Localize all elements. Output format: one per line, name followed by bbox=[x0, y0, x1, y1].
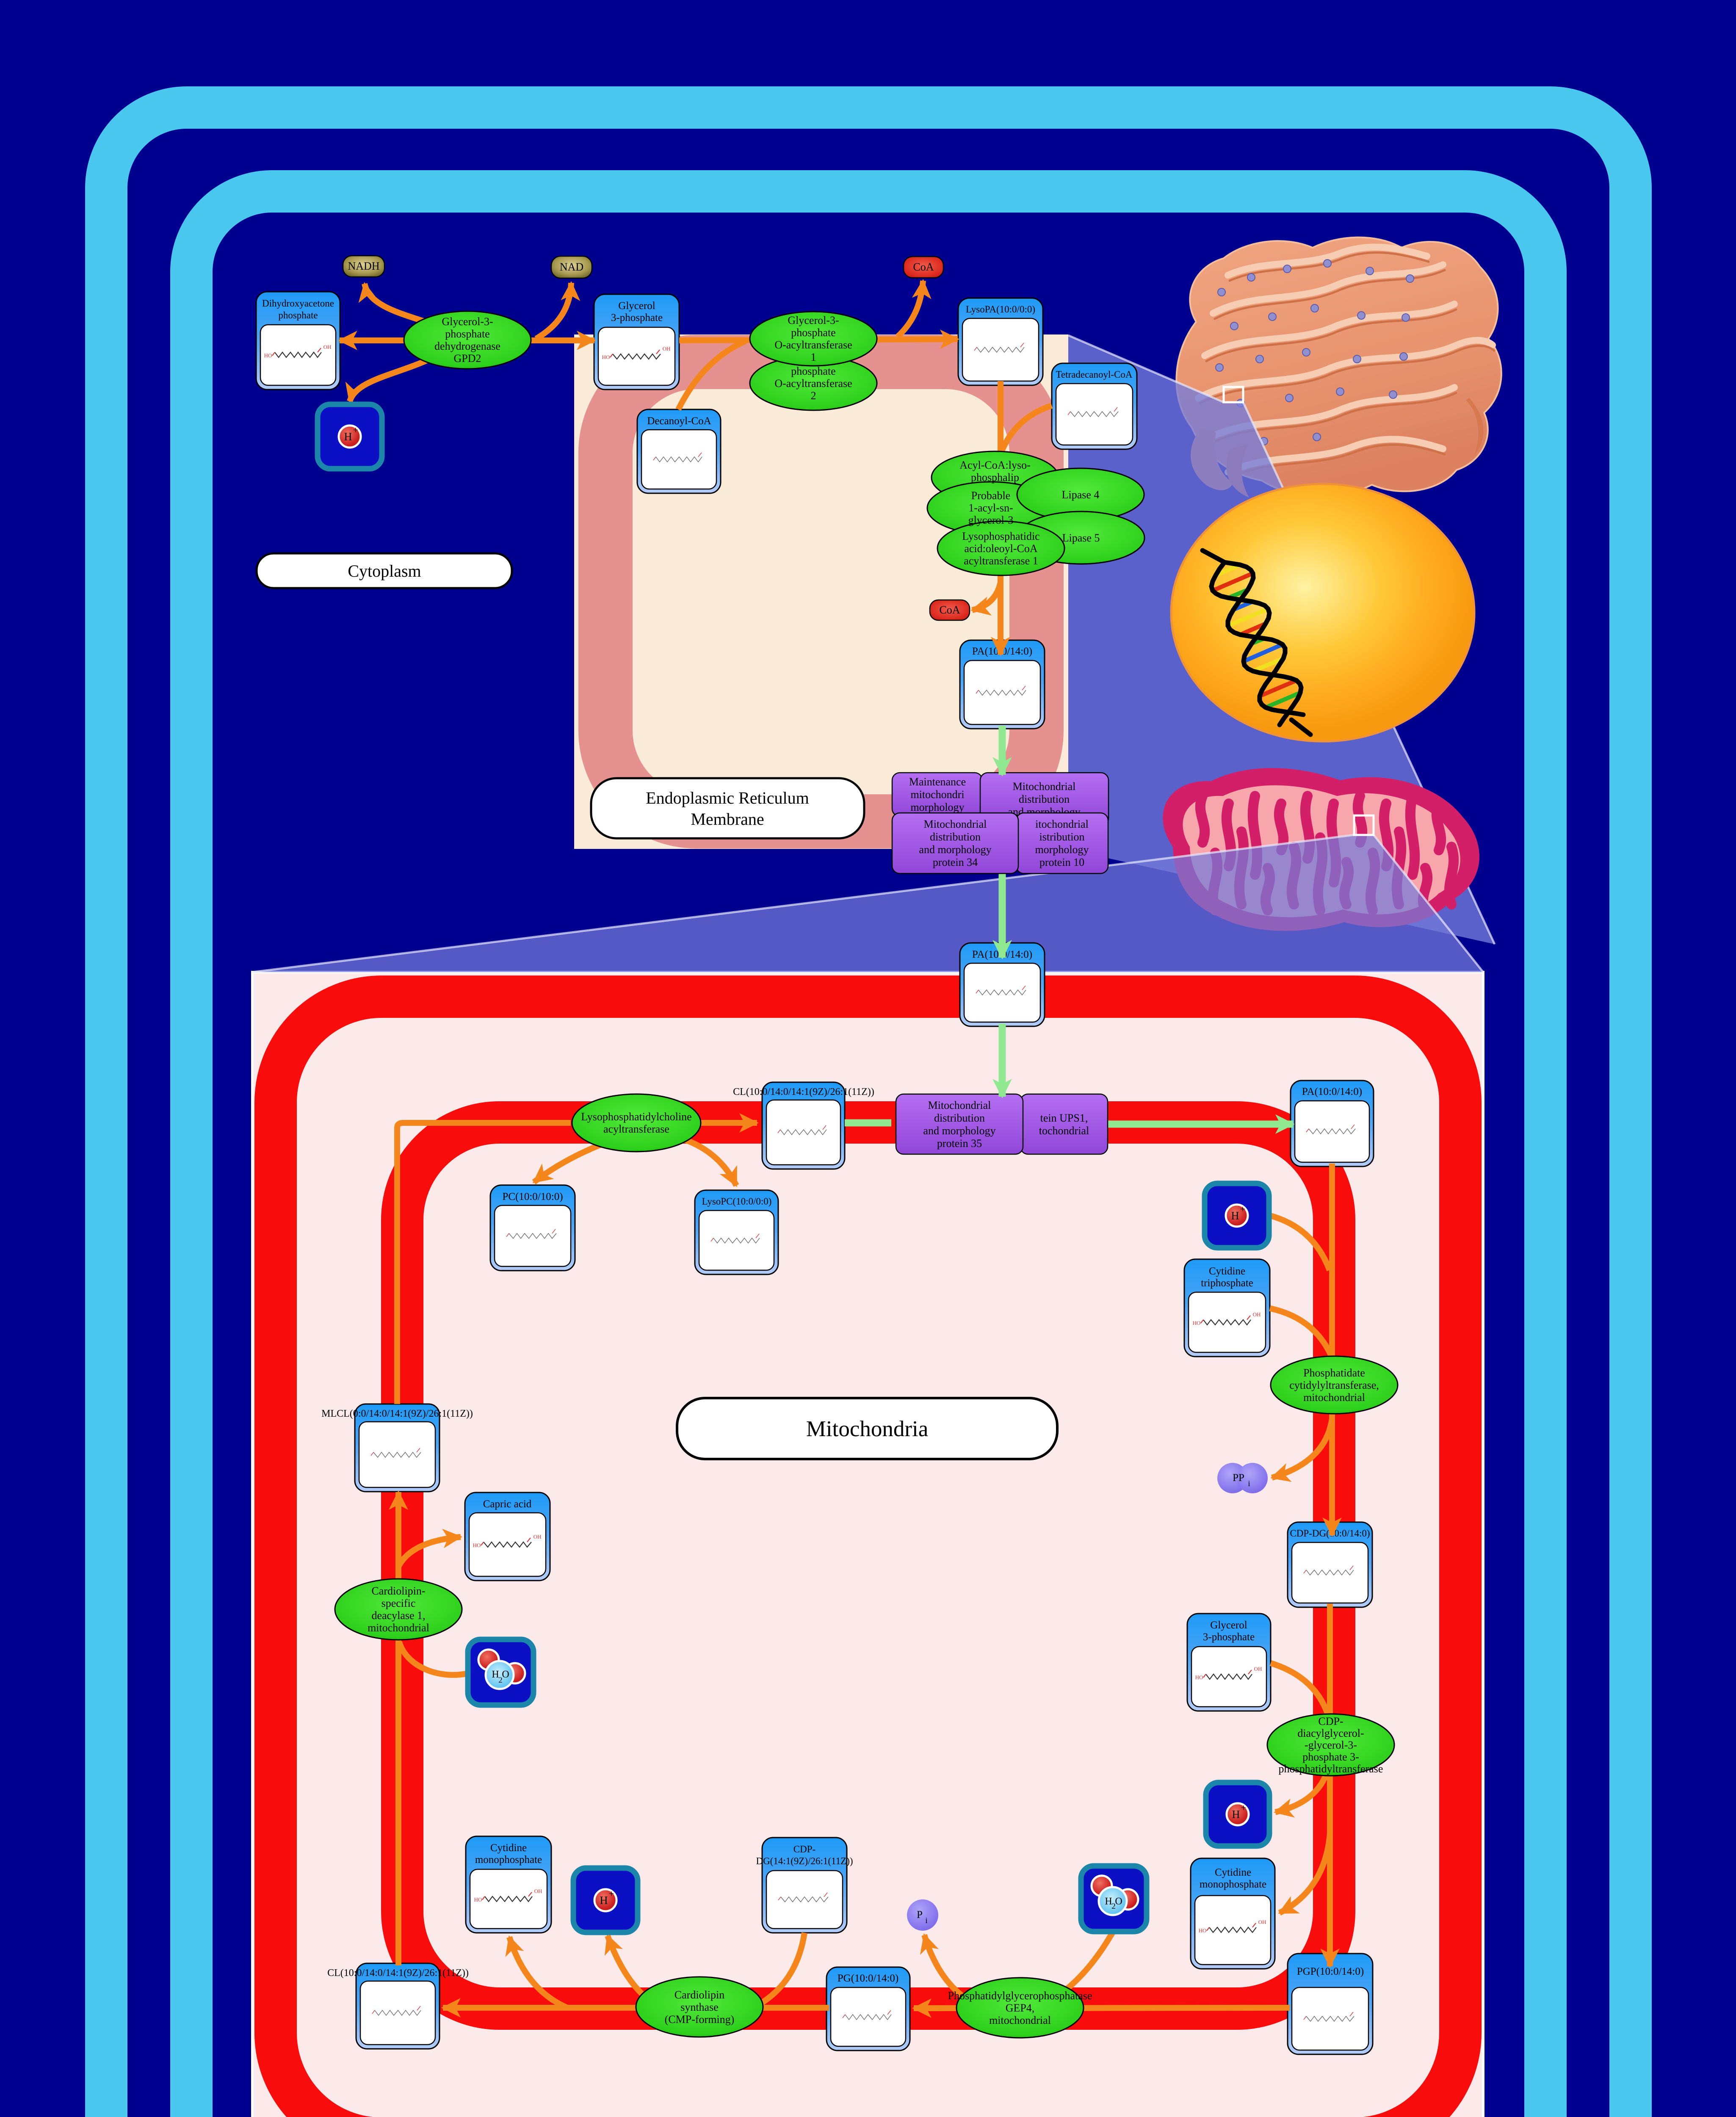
svg-text:Lysophosphatidic: Lysophosphatidic bbox=[962, 530, 1039, 542]
svg-text:CDP-: CDP- bbox=[1318, 1715, 1343, 1727]
svg-text:istribution: istribution bbox=[1039, 831, 1085, 843]
svg-text:Phosphatidylglycerophosphatase: Phosphatidylglycerophosphatase bbox=[948, 1990, 1092, 2002]
svg-text:HO: HO bbox=[473, 1542, 481, 1548]
svg-text:mitochondrial: mitochondrial bbox=[1303, 1391, 1365, 1404]
svg-text:tochondrial: tochondrial bbox=[1039, 1125, 1089, 1137]
svg-text:distribution: distribution bbox=[1019, 793, 1070, 805]
svg-text:PG(10:0/14:0): PG(10:0/14:0) bbox=[838, 1973, 898, 1984]
svg-text:acid:oleoyl-CoA: acid:oleoyl-CoA bbox=[964, 542, 1038, 555]
svg-text:H: H bbox=[492, 1669, 499, 1680]
svg-text:NADH: NADH bbox=[348, 260, 379, 272]
svg-text:Maintenance: Maintenance bbox=[909, 776, 966, 788]
svg-text:specific: specific bbox=[381, 1597, 416, 1609]
svg-text:3-phosphate: 3-phosphate bbox=[611, 312, 663, 323]
svg-text:PA(10:0/14:0): PA(10:0/14:0) bbox=[1302, 1086, 1362, 1097]
svg-text:Mitochondria: Mitochondria bbox=[806, 1417, 929, 1441]
svg-text:mitochondrial: mitochondrial bbox=[368, 1622, 429, 1634]
svg-text:CL(10:0/14:0/14:1(9Z)/26:1(11Z: CL(10:0/14:0/14:1(9Z)/26:1(11Z)) bbox=[327, 1968, 469, 1979]
svg-text:glycerol-3: glycerol-3 bbox=[968, 514, 1014, 526]
svg-text:3-phosphate: 3-phosphate bbox=[1203, 1631, 1255, 1643]
svg-text:itochondrial: itochondrial bbox=[1035, 818, 1089, 830]
svg-text:H: H bbox=[1105, 1896, 1112, 1907]
svg-text:1: 1 bbox=[811, 351, 816, 363]
svg-text:H: H bbox=[344, 431, 352, 443]
svg-text:HO: HO bbox=[1199, 1927, 1207, 1934]
svg-text:2: 2 bbox=[811, 390, 816, 402]
svg-text:i: i bbox=[925, 1916, 927, 1925]
svg-text:HO: HO bbox=[474, 1896, 482, 1903]
svg-text:Cytidine: Cytidine bbox=[1209, 1266, 1245, 1277]
svg-text:protein 10: protein 10 bbox=[1039, 856, 1084, 868]
svg-text:morphology: morphology bbox=[1035, 843, 1089, 856]
svg-text:Dihydroxyacetone: Dihydroxyacetone bbox=[262, 298, 334, 309]
svg-text:PGP(10:0/14:0): PGP(10:0/14:0) bbox=[1297, 1966, 1364, 1977]
svg-text:O: O bbox=[502, 1669, 509, 1680]
svg-text:monophosphate: monophosphate bbox=[1200, 1879, 1266, 1890]
svg-text:LysoPA(10:0/0:0): LysoPA(10:0/0:0) bbox=[966, 304, 1035, 315]
svg-text:morphology: morphology bbox=[910, 801, 964, 813]
svg-text:distribution: distribution bbox=[934, 1112, 985, 1124]
svg-text:phosphate: phosphate bbox=[278, 310, 318, 321]
svg-text:Cytoplasm: Cytoplasm bbox=[348, 561, 421, 580]
svg-text:OH: OH bbox=[323, 344, 332, 350]
svg-text:(CMP-forming): (CMP-forming) bbox=[665, 2013, 735, 2026]
svg-text:Lipase 4: Lipase 4 bbox=[1062, 489, 1100, 501]
svg-text:+: + bbox=[1240, 1204, 1245, 1214]
svg-text:Mitochondrial: Mitochondrial bbox=[1013, 780, 1076, 793]
svg-text:O-acyltransferase: O-acyltransferase bbox=[774, 339, 852, 351]
svg-text:acyltransferase: acyltransferase bbox=[603, 1123, 669, 1135]
svg-text:Glycerol: Glycerol bbox=[618, 300, 655, 312]
svg-text:dehydrogenase: dehydrogenase bbox=[434, 340, 500, 352]
svg-text:H: H bbox=[600, 1894, 608, 1907]
svg-text:Tetradecanoyl-CoA: Tetradecanoyl-CoA bbox=[1056, 369, 1132, 380]
svg-text:CoA: CoA bbox=[939, 604, 960, 616]
svg-text:protein 35: protein 35 bbox=[937, 1137, 982, 1150]
svg-text:and morphology: and morphology bbox=[919, 843, 991, 856]
svg-text:i: i bbox=[1248, 1479, 1250, 1488]
svg-text:and morphology: and morphology bbox=[923, 1125, 995, 1137]
svg-text:Lipase 5: Lipase 5 bbox=[1062, 532, 1100, 544]
svg-text:+: + bbox=[353, 425, 358, 435]
svg-text:CDP-: CDP- bbox=[793, 1844, 815, 1854]
svg-text:O-acyltransferase: O-acyltransferase bbox=[774, 377, 852, 390]
svg-text:Endoplasmic Reticulum: Endoplasmic Reticulum bbox=[646, 788, 809, 807]
svg-text:phosphate 3-: phosphate 3- bbox=[1302, 1751, 1359, 1763]
svg-text:LysoPC(10:0/0:0): LysoPC(10:0/0:0) bbox=[702, 1196, 772, 1207]
svg-text:distribution: distribution bbox=[930, 831, 981, 843]
svg-text:OH: OH bbox=[663, 345, 671, 352]
svg-text:Decanoyl-CoA: Decanoyl-CoA bbox=[647, 415, 711, 427]
svg-text:CoA: CoA bbox=[913, 261, 934, 273]
svg-text:P: P bbox=[917, 1909, 923, 1921]
svg-text:Mitochondrial: Mitochondrial bbox=[928, 1099, 991, 1111]
svg-text:1-acyl-sn-: 1-acyl-sn- bbox=[968, 502, 1013, 514]
svg-text:Cytidine: Cytidine bbox=[1215, 1867, 1251, 1878]
svg-text:phosphate: phosphate bbox=[791, 326, 835, 339]
svg-text:mitochondri: mitochondri bbox=[910, 788, 964, 801]
svg-text:MLCL(0:0/14:0/14:1(9Z)/26:1(11: MLCL(0:0/14:0/14:1(9Z)/26:1(11Z)) bbox=[321, 1408, 473, 1419]
svg-text:Membrane: Membrane bbox=[691, 810, 764, 829]
svg-text:Mitochondrial: Mitochondrial bbox=[924, 818, 987, 830]
svg-text:protein 34: protein 34 bbox=[933, 856, 978, 868]
svg-text:GPD2: GPD2 bbox=[453, 352, 481, 365]
svg-text:O: O bbox=[1115, 1896, 1122, 1907]
svg-text:phosphate: phosphate bbox=[791, 365, 835, 377]
svg-text:Cardiolipin: Cardiolipin bbox=[674, 1989, 724, 2001]
svg-text:PC(10:0/10:0): PC(10:0/10:0) bbox=[502, 1191, 563, 1202]
svg-text:triphosphate: triphosphate bbox=[1201, 1277, 1253, 1289]
svg-text:H: H bbox=[1232, 1808, 1240, 1821]
svg-text:Glycerol-3-: Glycerol-3- bbox=[442, 315, 493, 328]
svg-text:H: H bbox=[1231, 1210, 1239, 1222]
svg-text:OH: OH bbox=[534, 1534, 542, 1540]
svg-text:synthase: synthase bbox=[680, 2001, 719, 2013]
svg-text:GEP4,: GEP4, bbox=[1006, 2002, 1035, 2014]
svg-text:acyltransferase 1: acyltransferase 1 bbox=[964, 555, 1038, 567]
svg-text:cytidylyltransferase,: cytidylyltransferase, bbox=[1289, 1379, 1379, 1391]
svg-text:diacylglycerol-: diacylglycerol- bbox=[1297, 1727, 1364, 1739]
svg-text:deacylase 1,: deacylase 1, bbox=[371, 1609, 425, 1622]
svg-text:OH: OH bbox=[534, 1888, 542, 1894]
svg-text:+: + bbox=[609, 1888, 614, 1899]
svg-text:Probable: Probable bbox=[971, 489, 1010, 502]
svg-text:DG(14:1(9Z)/26:1(11Z)): DG(14:1(9Z)/26:1(11Z)) bbox=[756, 1856, 853, 1866]
svg-text:Glycerol-3-: Glycerol-3- bbox=[788, 314, 839, 326]
svg-text:Glycerol: Glycerol bbox=[1210, 1620, 1247, 1631]
svg-text:Cardiolipin-: Cardiolipin- bbox=[371, 1585, 425, 1597]
svg-text:PP: PP bbox=[1233, 1472, 1244, 1484]
svg-text:Lysophosphatidylcholine: Lysophosphatidylcholine bbox=[581, 1111, 691, 1123]
svg-text:mitochondrial: mitochondrial bbox=[989, 2014, 1051, 2026]
svg-text:CL(10:0/14:0/14:1(9Z)/26:1(11Z: CL(10:0/14:0/14:1(9Z)/26:1(11Z)) bbox=[733, 1086, 874, 1097]
svg-text:HO: HO bbox=[602, 354, 610, 360]
svg-text:Phosphatidate: Phosphatidate bbox=[1303, 1367, 1365, 1379]
svg-text:phosphatidyltransferase: phosphatidyltransferase bbox=[1279, 1763, 1383, 1775]
svg-text:HO: HO bbox=[1193, 1320, 1201, 1326]
svg-text:Capric acid: Capric acid bbox=[483, 1498, 532, 1510]
svg-text:HO: HO bbox=[1195, 1674, 1203, 1680]
svg-text:NAD: NAD bbox=[560, 261, 583, 273]
svg-text:OH: OH bbox=[1254, 1666, 1262, 1672]
svg-text:-glycerol-3-: -glycerol-3- bbox=[1305, 1739, 1357, 1751]
svg-text:tein UPS1,: tein UPS1, bbox=[1040, 1112, 1088, 1124]
svg-text:+: + bbox=[1241, 1802, 1246, 1813]
svg-text:OH: OH bbox=[1258, 1919, 1266, 1925]
svg-text:OH: OH bbox=[1253, 1311, 1261, 1318]
svg-text:Acyl-CoA:lyso-: Acyl-CoA:lyso- bbox=[959, 459, 1031, 471]
svg-text:Cytidine: Cytidine bbox=[490, 1842, 527, 1854]
svg-text:HO: HO bbox=[264, 352, 272, 359]
svg-text:phosphate: phosphate bbox=[445, 328, 489, 340]
svg-text:phosphalip: phosphalip bbox=[971, 471, 1019, 484]
svg-text:monophosphate: monophosphate bbox=[475, 1854, 542, 1866]
